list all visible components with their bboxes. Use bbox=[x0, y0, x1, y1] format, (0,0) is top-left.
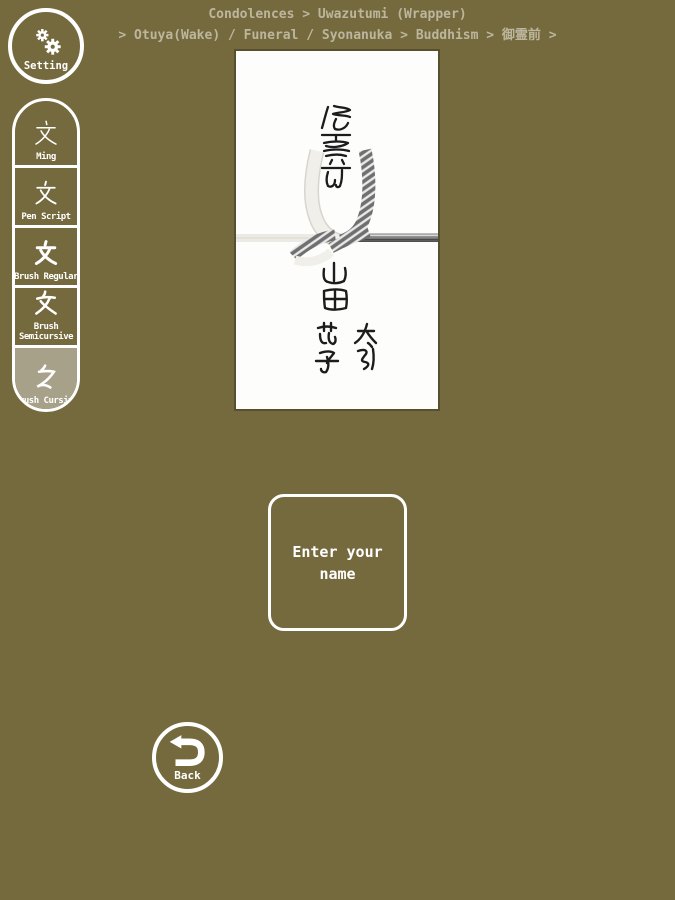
calligraphy-title-goreizen bbox=[322, 106, 350, 187]
gears-icon bbox=[24, 20, 68, 64]
mizuhiki-and-calligraphy bbox=[236, 51, 438, 409]
calligraphy-given-name-right bbox=[355, 324, 376, 369]
setting-button[interactable]: Setting bbox=[8, 8, 84, 84]
font-ming-button[interactable]: Ming bbox=[15, 101, 77, 165]
font-button-label: Brush Regular bbox=[14, 272, 78, 282]
font-brush-cursive-button[interactable]: Brush Cursive bbox=[15, 345, 77, 409]
back-button[interactable]: Back bbox=[152, 722, 223, 793]
back-arrow-icon bbox=[168, 734, 208, 772]
kanji-bun-brush-cursive-icon bbox=[32, 363, 60, 395]
kanji-bun-pen-icon bbox=[32, 179, 60, 211]
breadcrumb-line1: Condolences > Uwazutumi (Wrapper) bbox=[0, 4, 675, 25]
enter-name-button[interactable]: Enter your name bbox=[268, 494, 407, 631]
kanji-bun-brush-regular-icon bbox=[32, 239, 60, 271]
envelope-preview bbox=[234, 49, 440, 411]
calligraphy-given-name-left bbox=[316, 323, 338, 372]
calligraphy-family-name bbox=[324, 263, 347, 310]
font-brush-semicursive-button[interactable]: Brush Semicursive bbox=[15, 285, 77, 345]
font-button-label: Ming bbox=[14, 152, 78, 162]
setting-button-label: Setting bbox=[24, 60, 68, 72]
breadcrumb: Condolences > Uwazutumi (Wrapper) > Otuy… bbox=[0, 4, 675, 46]
font-button-label: Brush Cursive bbox=[14, 396, 78, 406]
mizuhiki-knot bbox=[293, 150, 369, 262]
kanji-bun-brush-semicursive-icon bbox=[32, 289, 60, 321]
enter-name-button-label: Enter your name bbox=[292, 541, 382, 585]
kanji-bun-ming-icon bbox=[32, 119, 60, 151]
breadcrumb-line2: > Otuya(Wake) / Funeral / Syonanuka > Bu… bbox=[0, 25, 675, 46]
font-button-label: Pen Script bbox=[14, 212, 78, 222]
font-button-label: Brush Semicursive bbox=[14, 322, 78, 342]
font-brush-regular-button[interactable]: Brush Regular bbox=[15, 225, 77, 285]
font-style-sidebar: Ming Pen Script Brush Regular Brush Semi… bbox=[12, 98, 80, 412]
back-button-label: Back bbox=[174, 769, 201, 782]
font-pen-script-button[interactable]: Pen Script bbox=[15, 165, 77, 225]
